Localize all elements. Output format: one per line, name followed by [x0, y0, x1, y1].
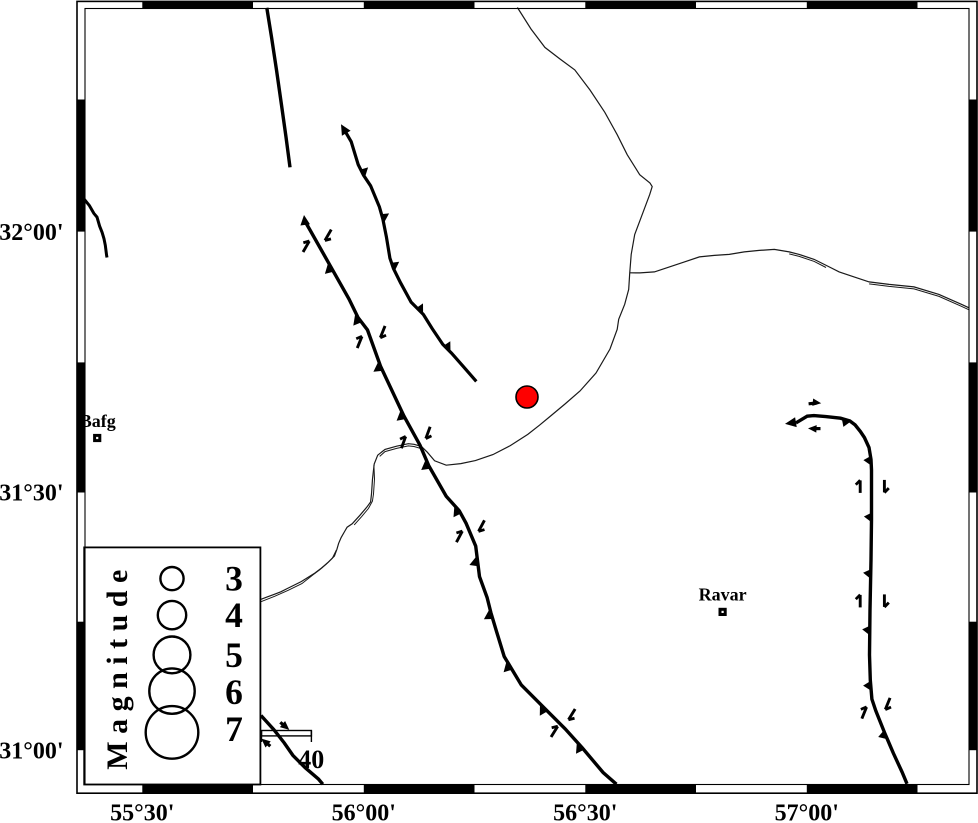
svg-text:6: 6 — [225, 672, 243, 712]
svg-text:5: 5 — [225, 635, 243, 675]
svg-text:56°30': 56°30' — [553, 801, 617, 823]
svg-text:57°00': 57°00' — [775, 801, 839, 823]
svg-text:3: 3 — [225, 558, 243, 598]
svg-text:55°30': 55°30' — [110, 801, 174, 823]
svg-text:40: 40 — [298, 745, 324, 774]
svg-text:32°00': 32°00' — [0, 220, 64, 246]
svg-text:4: 4 — [225, 595, 243, 635]
svg-text:31°00': 31°00' — [0, 738, 64, 764]
svg-text:31°30': 31°30' — [0, 481, 64, 507]
svg-text:7: 7 — [225, 709, 243, 749]
svg-text:Ravar: Ravar — [699, 585, 747, 605]
svg-text:Magnitude: Magnitude — [101, 562, 134, 770]
svg-text:56°00': 56°00' — [332, 801, 396, 823]
